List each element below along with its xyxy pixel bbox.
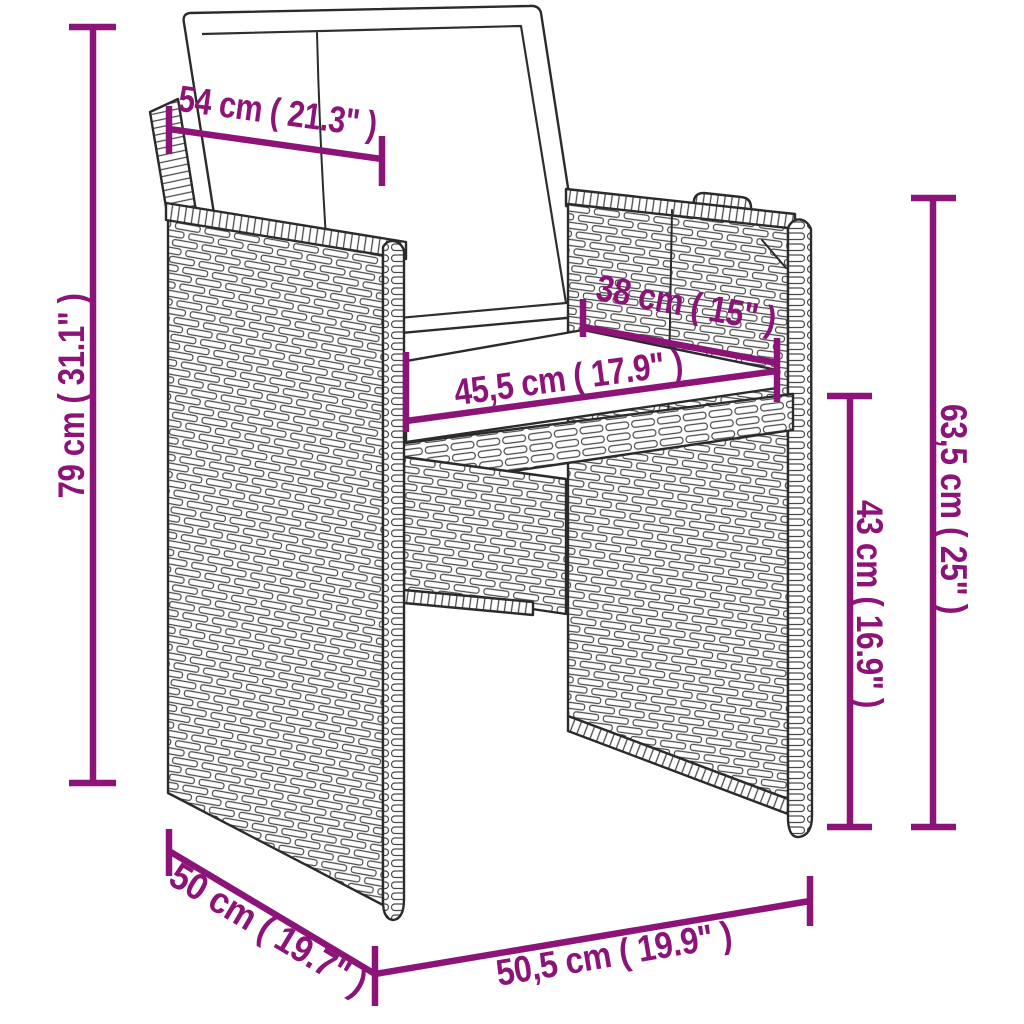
dimension-diagram: 79 cm ( 31.1" ) 54 cm ( 21.3" ) 38 cm ( … bbox=[0, 0, 1024, 1024]
dimension-seat-height: 43 cm ( 16.9" ) bbox=[827, 396, 890, 827]
dimension-label: 63,5 cm ( 25" ) bbox=[933, 404, 974, 614]
diagram-canvas: 79 cm ( 31.1" ) 54 cm ( 21.3" ) 38 cm ( … bbox=[0, 0, 1024, 1024]
left-side-panel bbox=[166, 203, 406, 920]
right-panel-front-post bbox=[788, 219, 812, 837]
dimension-overall-height: 79 cm ( 31.1" ) bbox=[51, 27, 116, 783]
dimension-armrest-height: 63,5 cm ( 25" ) bbox=[911, 198, 974, 827]
apron-face bbox=[404, 457, 566, 614]
left-panel-outer-face bbox=[168, 212, 383, 905]
dimension-overall-width: 50,5 cm ( 19.9" ) bbox=[375, 876, 810, 994]
left-panel-front-post bbox=[383, 241, 404, 920]
dimension-label: 43 cm ( 16.9" ) bbox=[849, 500, 890, 708]
dimension-label: 79 cm ( 31.1" ) bbox=[51, 294, 92, 499]
dimension-label: 50,5 cm ( 19.9" ) bbox=[493, 914, 735, 994]
under-seat-apron bbox=[404, 457, 566, 615]
